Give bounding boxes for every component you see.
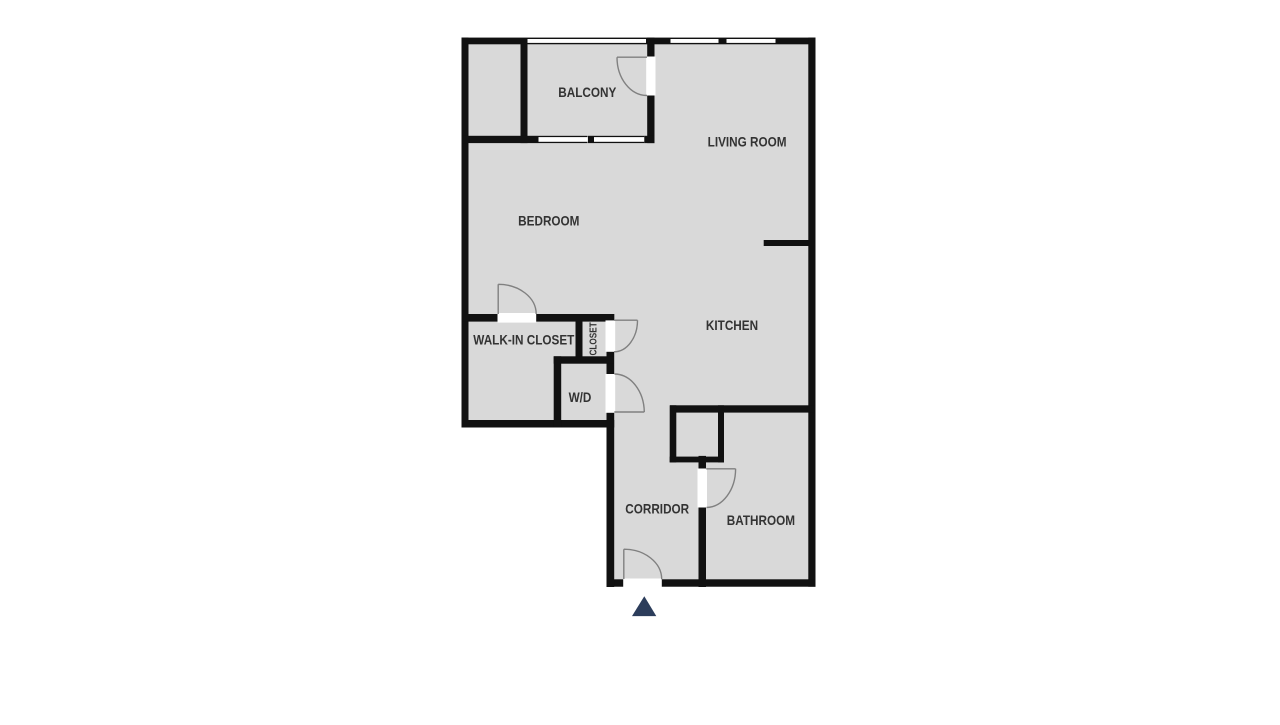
svg-text:W/D: W/D <box>569 390 592 405</box>
svg-text:BATHROOM: BATHROOM <box>727 513 795 528</box>
svg-text:LIVING ROOM: LIVING ROOM <box>708 135 787 150</box>
svg-text:BALCONY: BALCONY <box>558 85 617 100</box>
svg-text:CORRIDOR: CORRIDOR <box>625 502 689 517</box>
svg-text:BEDROOM: BEDROOM <box>518 214 579 229</box>
svg-text:KITCHEN: KITCHEN <box>706 318 758 333</box>
svg-text:CLOSET: CLOSET <box>588 322 599 356</box>
svg-text:WALK-IN CLOSET: WALK-IN CLOSET <box>473 333 574 348</box>
